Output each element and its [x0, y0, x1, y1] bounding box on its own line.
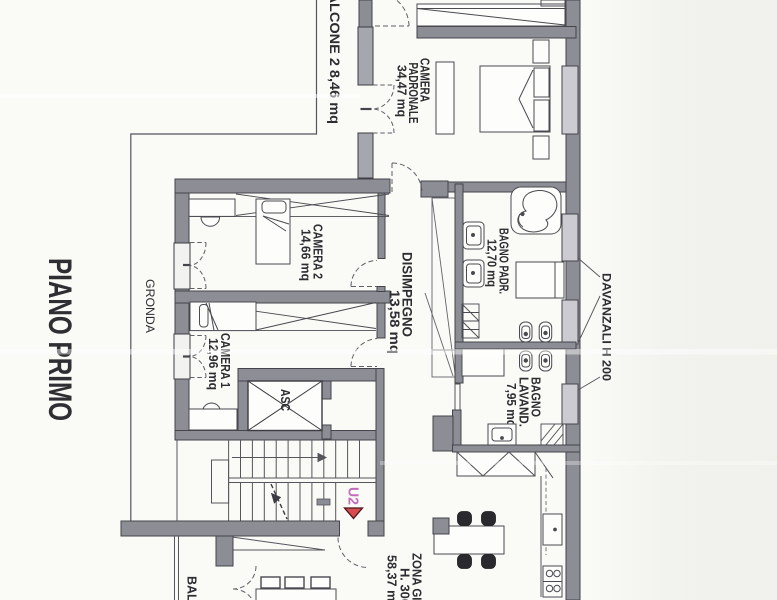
- svg-text:GRONDA: GRONDA: [143, 279, 155, 333]
- svg-text:14,66 mq: 14,66 mq: [299, 229, 314, 281]
- svg-text:58,37 mq: 58,37 mq: [385, 555, 400, 600]
- svg-text:34,47 mq: 34,47 mq: [395, 65, 410, 117]
- svg-text:ASC: ASC: [278, 389, 293, 411]
- svg-text:7,95 mq: 7,95 mq: [504, 383, 519, 427]
- svg-text:12,70 mq: 12,70 mq: [485, 239, 500, 287]
- svg-text:BALCONE 1: BALCONE 1: [185, 576, 199, 600]
- svg-text:12,96 mq: 12,96 mq: [206, 338, 221, 390]
- svg-text:DAVANZALI H 200: DAVANZALI H 200: [600, 273, 614, 381]
- svg-text:13,58 mq: 13,58 mq: [387, 290, 402, 354]
- svg-text:BALCONE 2 8,46 mq: BALCONE 2 8,46 mq: [327, 0, 343, 124]
- svg-text:U2: U2: [345, 487, 361, 505]
- svg-text:PIANO PRIMO: PIANO PRIMO: [42, 258, 78, 421]
